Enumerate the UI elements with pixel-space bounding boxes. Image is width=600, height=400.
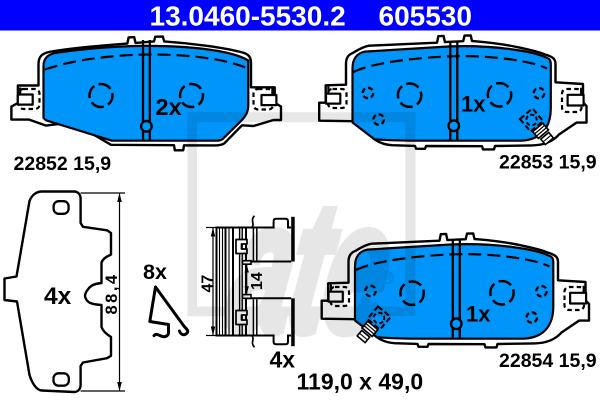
svg-text:47: 47	[200, 275, 217, 293]
svg-text:22853 15,9: 22853 15,9	[499, 152, 597, 174]
svg-text:22852 15,9: 22852 15,9	[14, 153, 112, 175]
svg-text:22854 15,9: 22854 15,9	[499, 350, 597, 372]
svg-text:13.0460-5530.2: 13.0460-5530.2	[150, 1, 346, 32]
svg-text:R: R	[384, 273, 391, 284]
svg-text:88,4: 88,4	[103, 272, 121, 314]
svg-text:1x: 1x	[466, 302, 491, 327]
svg-text:ate: ate	[218, 164, 402, 371]
svg-text:119,0 x 49,0: 119,0 x 49,0	[297, 369, 424, 395]
svg-text:8x: 8x	[143, 260, 167, 284]
svg-text:1x: 1x	[461, 92, 486, 117]
svg-text:2x: 2x	[156, 94, 182, 120]
svg-text:605530: 605530	[379, 1, 472, 32]
svg-text:4x: 4x	[44, 283, 72, 310]
